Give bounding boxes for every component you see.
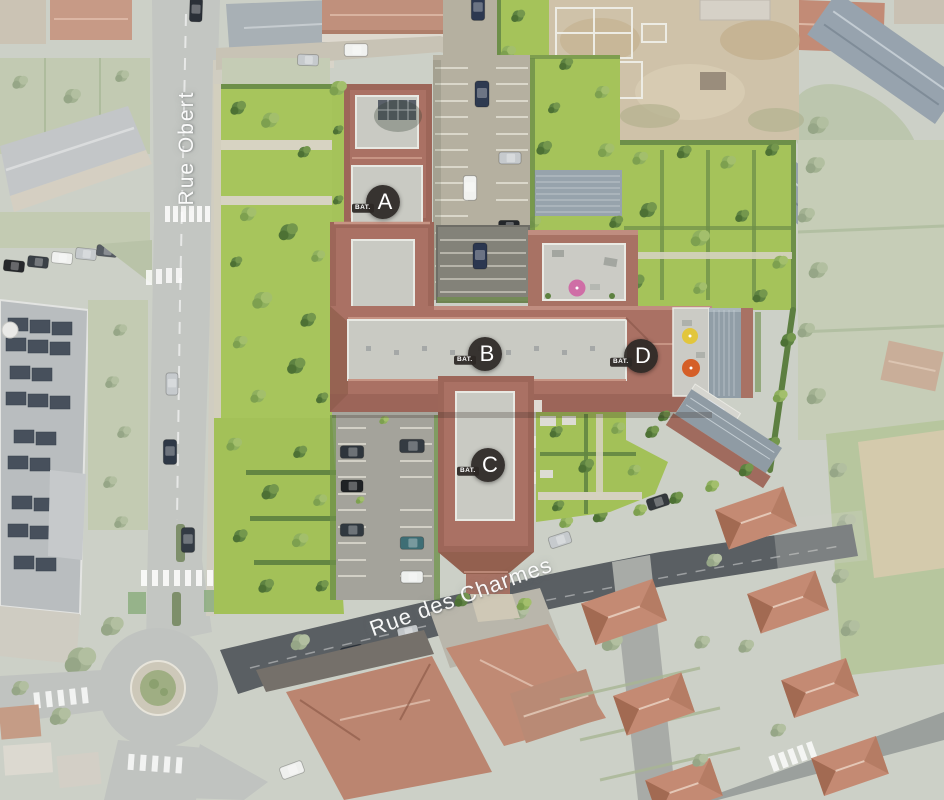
marker-letter: C bbox=[482, 454, 498, 476]
marker-prefix: BAT. bbox=[454, 356, 476, 365]
pergola-roof bbox=[534, 170, 622, 216]
pergola-garden bbox=[527, 55, 623, 230]
marker-prefix: BAT. bbox=[352, 204, 374, 213]
marker-prefix: BAT. bbox=[610, 358, 632, 367]
marker-prefix: BAT. bbox=[457, 467, 479, 476]
building-marker-b[interactable]: BAT. B bbox=[468, 337, 502, 371]
site-plan-canvas: BAT. A BAT. B BAT. C BAT. D Rue Obert Ru… bbox=[0, 0, 944, 800]
southwest-lawn bbox=[214, 418, 344, 614]
west-lawn bbox=[214, 84, 332, 418]
marker-letter: B bbox=[480, 343, 495, 365]
interior-parking-court bbox=[437, 226, 529, 303]
terrace-building bbox=[528, 230, 638, 312]
marker-letter: A bbox=[378, 191, 393, 213]
building-marker-c[interactable]: BAT. C bbox=[471, 448, 505, 482]
aerial-photo bbox=[0, 0, 944, 800]
building-marker-d[interactable]: BAT. D bbox=[624, 339, 658, 373]
marker-letter: D bbox=[635, 345, 651, 367]
building-marker-a[interactable]: BAT. A bbox=[366, 185, 400, 219]
south-parking-lot bbox=[330, 415, 440, 600]
